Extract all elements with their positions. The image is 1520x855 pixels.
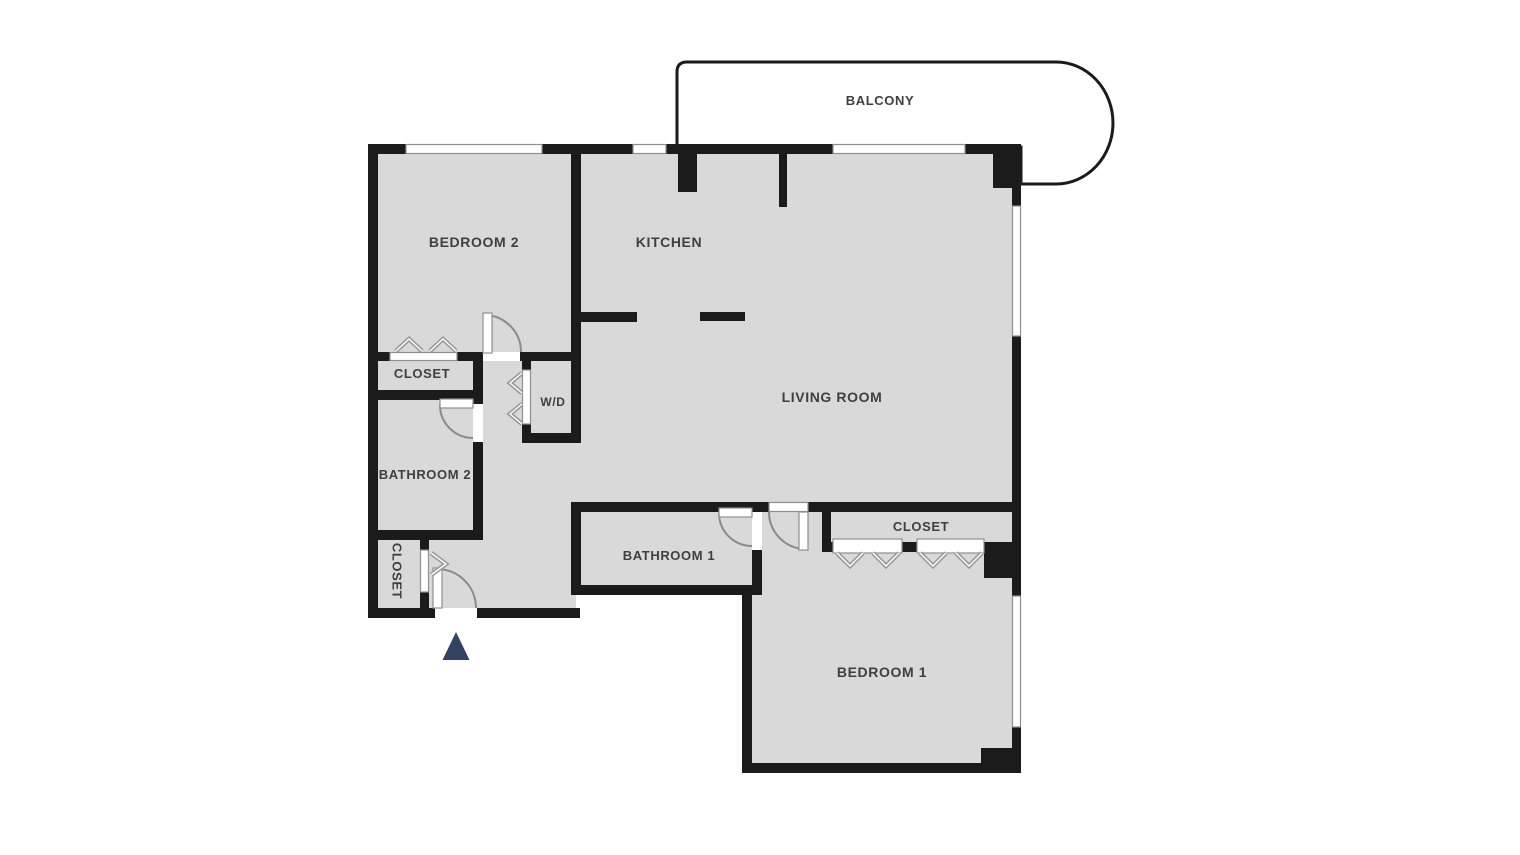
- label-closet-bedroom2: CLOSET: [394, 366, 450, 381]
- door-leaf: [799, 512, 808, 550]
- window-bedroom1: [1013, 596, 1021, 727]
- opening-closet-bedroom2: [390, 353, 457, 361]
- label-bedroom1: BEDROOM 1: [837, 664, 927, 680]
- floorplan-svg: BALCONY BEDROOM 2 KITCHEN LIVING ROOM CL…: [0, 0, 1520, 855]
- wall-corner-top-right: [993, 144, 1021, 188]
- label-bathroom2: BATHROOM 2: [379, 467, 471, 482]
- door-leaf: [483, 313, 492, 353]
- wall-wd-stub-top: [522, 361, 531, 370]
- wall-left: [368, 144, 378, 618]
- door-gap-bathroom1: [752, 512, 762, 550]
- wall-closet1-front-b: [902, 542, 917, 552]
- wall-closet1-front-a: [822, 542, 833, 552]
- wall-closet1-top: [832, 502, 1021, 512]
- wall-wd-bottom: [522, 433, 578, 443]
- wall-bathroom1-left: [571, 502, 581, 595]
- wall-bedroom1-bottom: [742, 763, 1021, 773]
- closet1-slider-panel-b: [917, 539, 984, 553]
- wall-bedroom1-left: [742, 595, 752, 773]
- label-wd: W/D: [540, 395, 565, 409]
- opening-hallcloset: [421, 550, 429, 592]
- sliding-door-balcony: [833, 145, 965, 154]
- label-living-room: LIVING ROOM: [782, 389, 883, 405]
- door-leaf: [440, 399, 473, 408]
- wall-kitchen-divider-b: [700, 312, 745, 321]
- label-kitchen: KITCHEN: [636, 234, 702, 250]
- wall-main-vertical: [571, 144, 581, 443]
- label-bedroom2: BEDROOM 2: [429, 234, 519, 250]
- label-balcony: BALCONY: [846, 93, 914, 108]
- wall-kitchen-stub: [779, 154, 787, 207]
- door-gap-entry: [435, 608, 477, 618]
- closet1-slider-panel-a: [833, 539, 902, 553]
- opening-bedroom1-hall: [769, 503, 808, 512]
- wall-wd-stub-bottom: [522, 424, 531, 434]
- label-bathroom1: BATHROOM 1: [623, 548, 715, 563]
- floorplan-canvas: BALCONY BEDROOM 2 KITCHEN LIVING ROOM CL…: [0, 0, 1520, 855]
- door-gap-bathroom2: [473, 404, 483, 442]
- window-bedroom2: [406, 145, 542, 154]
- wall-balcony-jamb: [678, 154, 697, 192]
- wall-bathroom1-bottom: [571, 585, 762, 595]
- opening-wd: [523, 370, 531, 424]
- label-closet-hall: CLOSET: [390, 543, 405, 599]
- label-closet-bedroom1: CLOSET: [893, 519, 949, 534]
- wall-bedroom1-corner-upper: [984, 542, 1021, 578]
- window-livingroom: [1013, 206, 1021, 336]
- door-leaf: [719, 508, 752, 517]
- wall-kitchen-divider-a: [571, 312, 637, 322]
- window-kitchen: [633, 145, 666, 154]
- entry-marker-icon: [443, 632, 470, 660]
